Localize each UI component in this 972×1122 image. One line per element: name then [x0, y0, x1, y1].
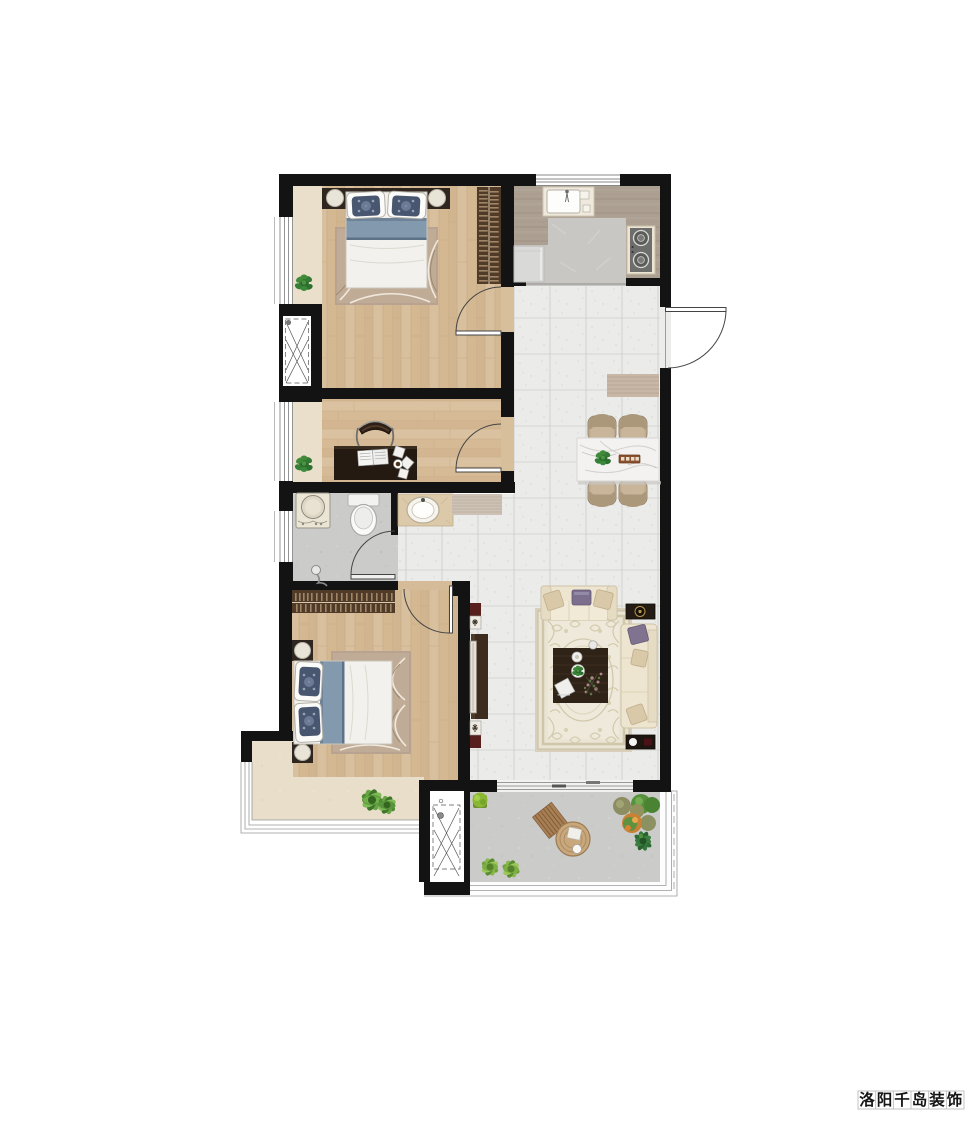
- svg-text:洛: 洛: [859, 1090, 875, 1109]
- svg-text:岛: 岛: [912, 1090, 928, 1109]
- svg-text:装: 装: [928, 1090, 945, 1109]
- svg-text:饰: 饰: [947, 1090, 963, 1109]
- svg-text:阳: 阳: [877, 1091, 893, 1109]
- svg-text:千: 千: [894, 1091, 910, 1109]
